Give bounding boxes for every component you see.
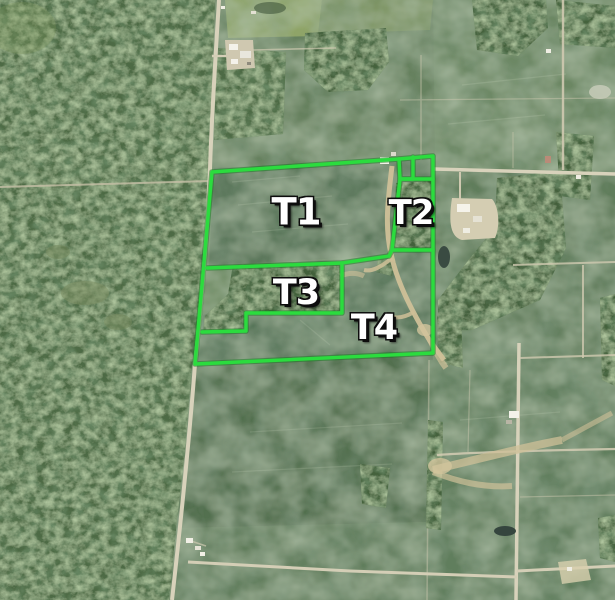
building <box>229 44 238 50</box>
building <box>506 420 512 424</box>
tract-label-t2: T2 <box>389 193 434 233</box>
aerial-parcel-map: T1 T2 T3 T4 <box>0 0 615 600</box>
building <box>545 156 551 163</box>
tract-label-t1: T1 <box>272 191 321 234</box>
building <box>221 6 225 9</box>
building <box>576 175 581 179</box>
building <box>546 49 551 53</box>
building <box>509 411 519 418</box>
building <box>195 546 201 550</box>
building <box>231 59 238 64</box>
building <box>200 552 205 556</box>
pond <box>438 246 450 268</box>
tract-label-t3: T3 <box>273 273 319 313</box>
tract-label-t4: T4 <box>351 308 397 348</box>
building <box>463 228 470 233</box>
building <box>391 152 396 156</box>
building <box>457 204 470 212</box>
building <box>186 538 193 543</box>
building <box>567 567 572 571</box>
building <box>251 11 256 14</box>
pond <box>494 526 516 536</box>
building <box>247 62 251 65</box>
building <box>473 216 482 222</box>
pond <box>589 85 611 99</box>
building <box>240 51 251 58</box>
